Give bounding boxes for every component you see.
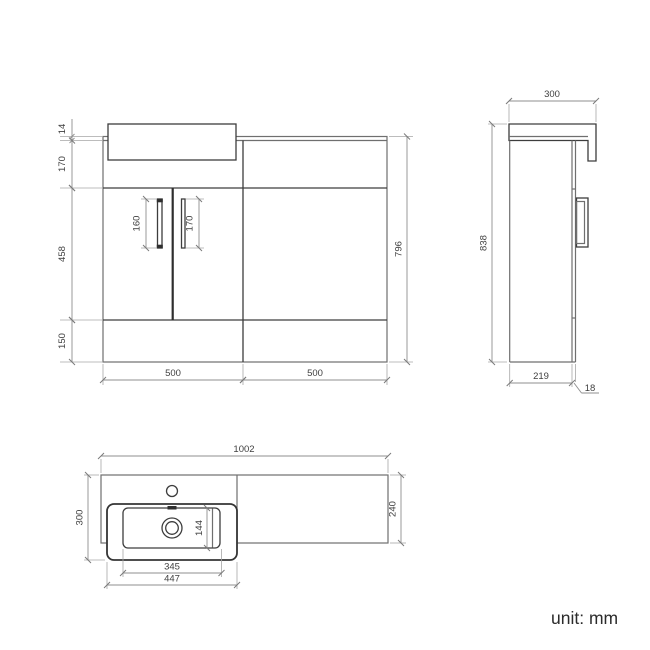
dim-text-cabinet-depth: 219: [533, 371, 549, 382]
dim-text-plan-worktop-depth: 240: [388, 501, 399, 517]
leader-panel-thickness: [574, 383, 582, 393]
front-view: 14 170 458 150 160 170 796 500 500: [57, 119, 413, 385]
dim-text-overall-height: 796: [394, 241, 405, 257]
unit-label: unit: mm: [551, 608, 618, 628]
left-handle-bottom-cap: [157, 245, 163, 249]
dim-text-left-handle: 160: [132, 216, 143, 232]
dim-text-panel-thickness: 18: [585, 383, 596, 394]
basin-front-outline: [108, 124, 236, 160]
tap-hole: [167, 486, 178, 497]
dim-text-right-handle: 170: [185, 216, 196, 232]
dim-text-bowl-inner-depth: 144: [194, 520, 205, 536]
dim-text-upper-panel-height: 170: [57, 156, 68, 172]
dim-text-door-height: 458: [57, 246, 68, 262]
dim-text-countertop-thickness: 14: [57, 124, 68, 135]
dim-text-vanity-width: 500: [165, 368, 181, 379]
dim-text-basin-width: 447: [164, 574, 180, 585]
plan-view: 1002 300 240 144 345 447: [75, 444, 407, 589]
dim-text-basin-overall-depth: 300: [75, 510, 86, 526]
dim-text-overall-width: 1002: [233, 444, 254, 455]
dim-text-plinth-height: 150: [57, 333, 68, 349]
dim-text-worktop-depth: 300: [544, 89, 560, 100]
overflow-slot: [168, 506, 177, 510]
dim-text-side-overall-height: 838: [479, 235, 490, 251]
left-door-handle: [158, 199, 163, 248]
technical-drawing-page: 14 170 458 150 160 170 796 500 500: [0, 0, 650, 650]
drawing-svg: 14 170 458 150 160 170 796 500 500: [0, 0, 650, 650]
drain-inner-circle: [166, 522, 179, 535]
handle-side-profile: [577, 198, 589, 247]
left-handle-top-cap: [157, 199, 163, 203]
cabinet-outline: [103, 137, 387, 363]
side-view: 300 838 219 18: [479, 89, 600, 394]
dim-text-wc-width: 500: [307, 368, 323, 379]
dim-text-bowl-inner-width: 345: [164, 562, 180, 573]
worktop-basin-profile: [509, 124, 596, 161]
